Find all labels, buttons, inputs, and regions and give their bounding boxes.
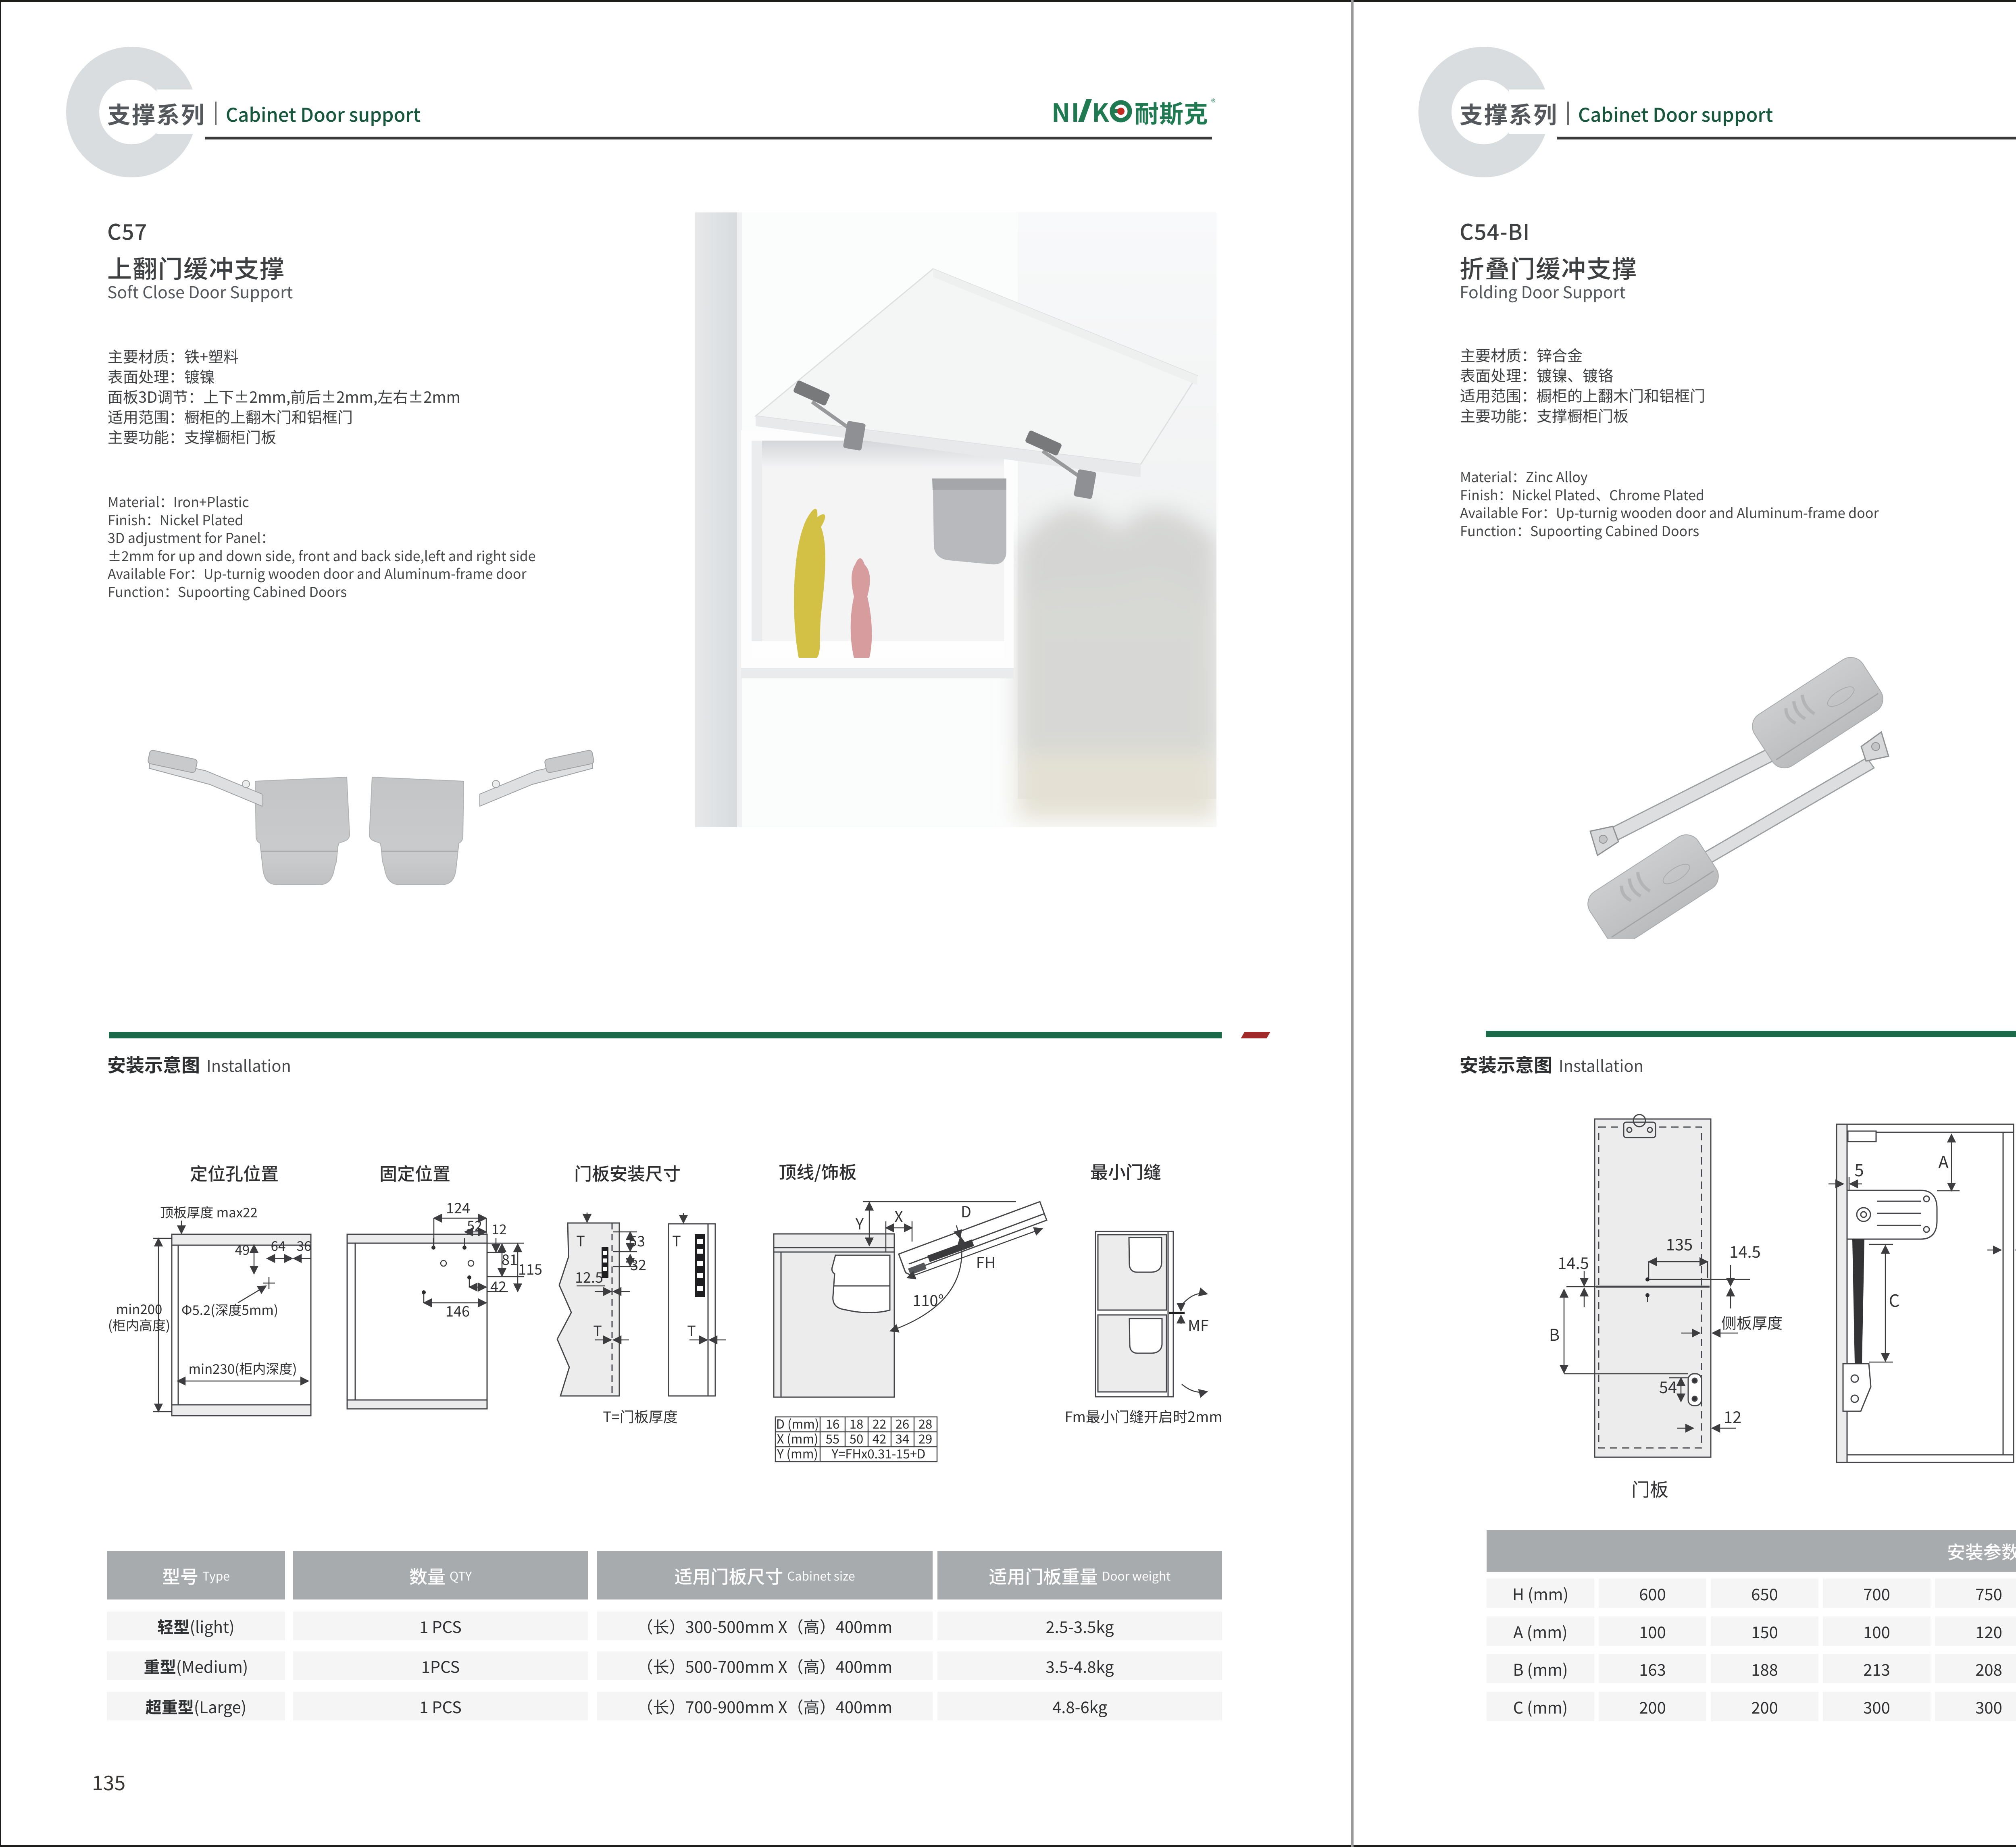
svg-text:门板: 门板 [1631, 1475, 1668, 1502]
svg-text:52: 52 [467, 1215, 482, 1235]
svg-text:A: A [1938, 1149, 1949, 1173]
svg-text:D: D [961, 1200, 971, 1222]
svg-text:Φ5.2(深度5mm): Φ5.2(深度5mm) [181, 1300, 278, 1319]
svg-text:64: 64 [271, 1235, 286, 1255]
svg-text:K: K [1092, 97, 1109, 129]
svg-text:49: 49 [235, 1240, 250, 1259]
svg-text:®: ® [1211, 97, 1215, 108]
svg-text:T: T [672, 1230, 681, 1251]
svg-text:X: X [894, 1204, 903, 1227]
svg-text:NI: NI [1052, 97, 1080, 129]
svg-text:门板安装尺寸: 门板安装尺寸 [574, 1160, 681, 1186]
svg-text:min230(柜内深度): min230(柜内深度) [188, 1358, 297, 1378]
svg-text:T: T [593, 1320, 602, 1341]
svg-text:12: 12 [492, 1219, 507, 1238]
svg-text:Fm最小门缝开启时2mm: Fm最小门缝开启时2mm [1064, 1406, 1222, 1427]
svg-text:MF: MF [1188, 1313, 1209, 1335]
svg-text:T: T [687, 1320, 696, 1341]
svg-text:14.5: 14.5 [1729, 1239, 1761, 1263]
svg-text:Y (mm): Y (mm) [777, 1444, 818, 1462]
svg-text:T: T [576, 1230, 585, 1251]
svg-text:Y=FHx0.31-15+D: Y=FHx0.31-15+D [831, 1444, 926, 1462]
svg-text:53: 53 [629, 1230, 645, 1251]
svg-text:侧板厚度: 侧板厚度 [1721, 1311, 1783, 1333]
svg-text:36: 36 [297, 1235, 312, 1255]
svg-text:5: 5 [1854, 1157, 1864, 1181]
svg-text:定位孔位置: 定位孔位置 [190, 1160, 279, 1186]
svg-text:124: 124 [446, 1197, 470, 1218]
svg-text:最小门缝: 最小门缝 [1090, 1158, 1161, 1184]
svg-text:54: 54 [1659, 1375, 1677, 1398]
svg-text:146: 146 [446, 1300, 470, 1321]
svg-text:固定位置: 固定位置 [379, 1160, 450, 1186]
svg-text:32: 32 [630, 1254, 646, 1275]
svg-text:Y: Y [855, 1212, 864, 1234]
svg-text:110°: 110° [912, 1288, 943, 1310]
svg-text:12.5: 12.5 [575, 1266, 603, 1287]
svg-text:顶板厚度 max22: 顶板厚度 max22 [160, 1202, 258, 1221]
svg-text:(柜内高度): (柜内高度) [108, 1315, 170, 1334]
svg-text:14.5: 14.5 [1558, 1250, 1589, 1274]
svg-text:81: 81 [502, 1248, 518, 1269]
svg-text:B: B [1549, 1322, 1560, 1346]
svg-text:顶线/饰板: 顶线/饰板 [779, 1158, 856, 1184]
svg-text:耐斯克: 耐斯克 [1135, 97, 1208, 129]
svg-text:C: C [1889, 1287, 1900, 1312]
svg-text:T=门板厚度: T=门板厚度 [603, 1406, 678, 1427]
svg-text:42: 42 [490, 1275, 506, 1296]
svg-text:12: 12 [1724, 1404, 1741, 1428]
svg-text:135: 135 [1666, 1232, 1693, 1255]
svg-text:115: 115 [518, 1258, 542, 1279]
svg-text:FH: FH [976, 1250, 996, 1273]
